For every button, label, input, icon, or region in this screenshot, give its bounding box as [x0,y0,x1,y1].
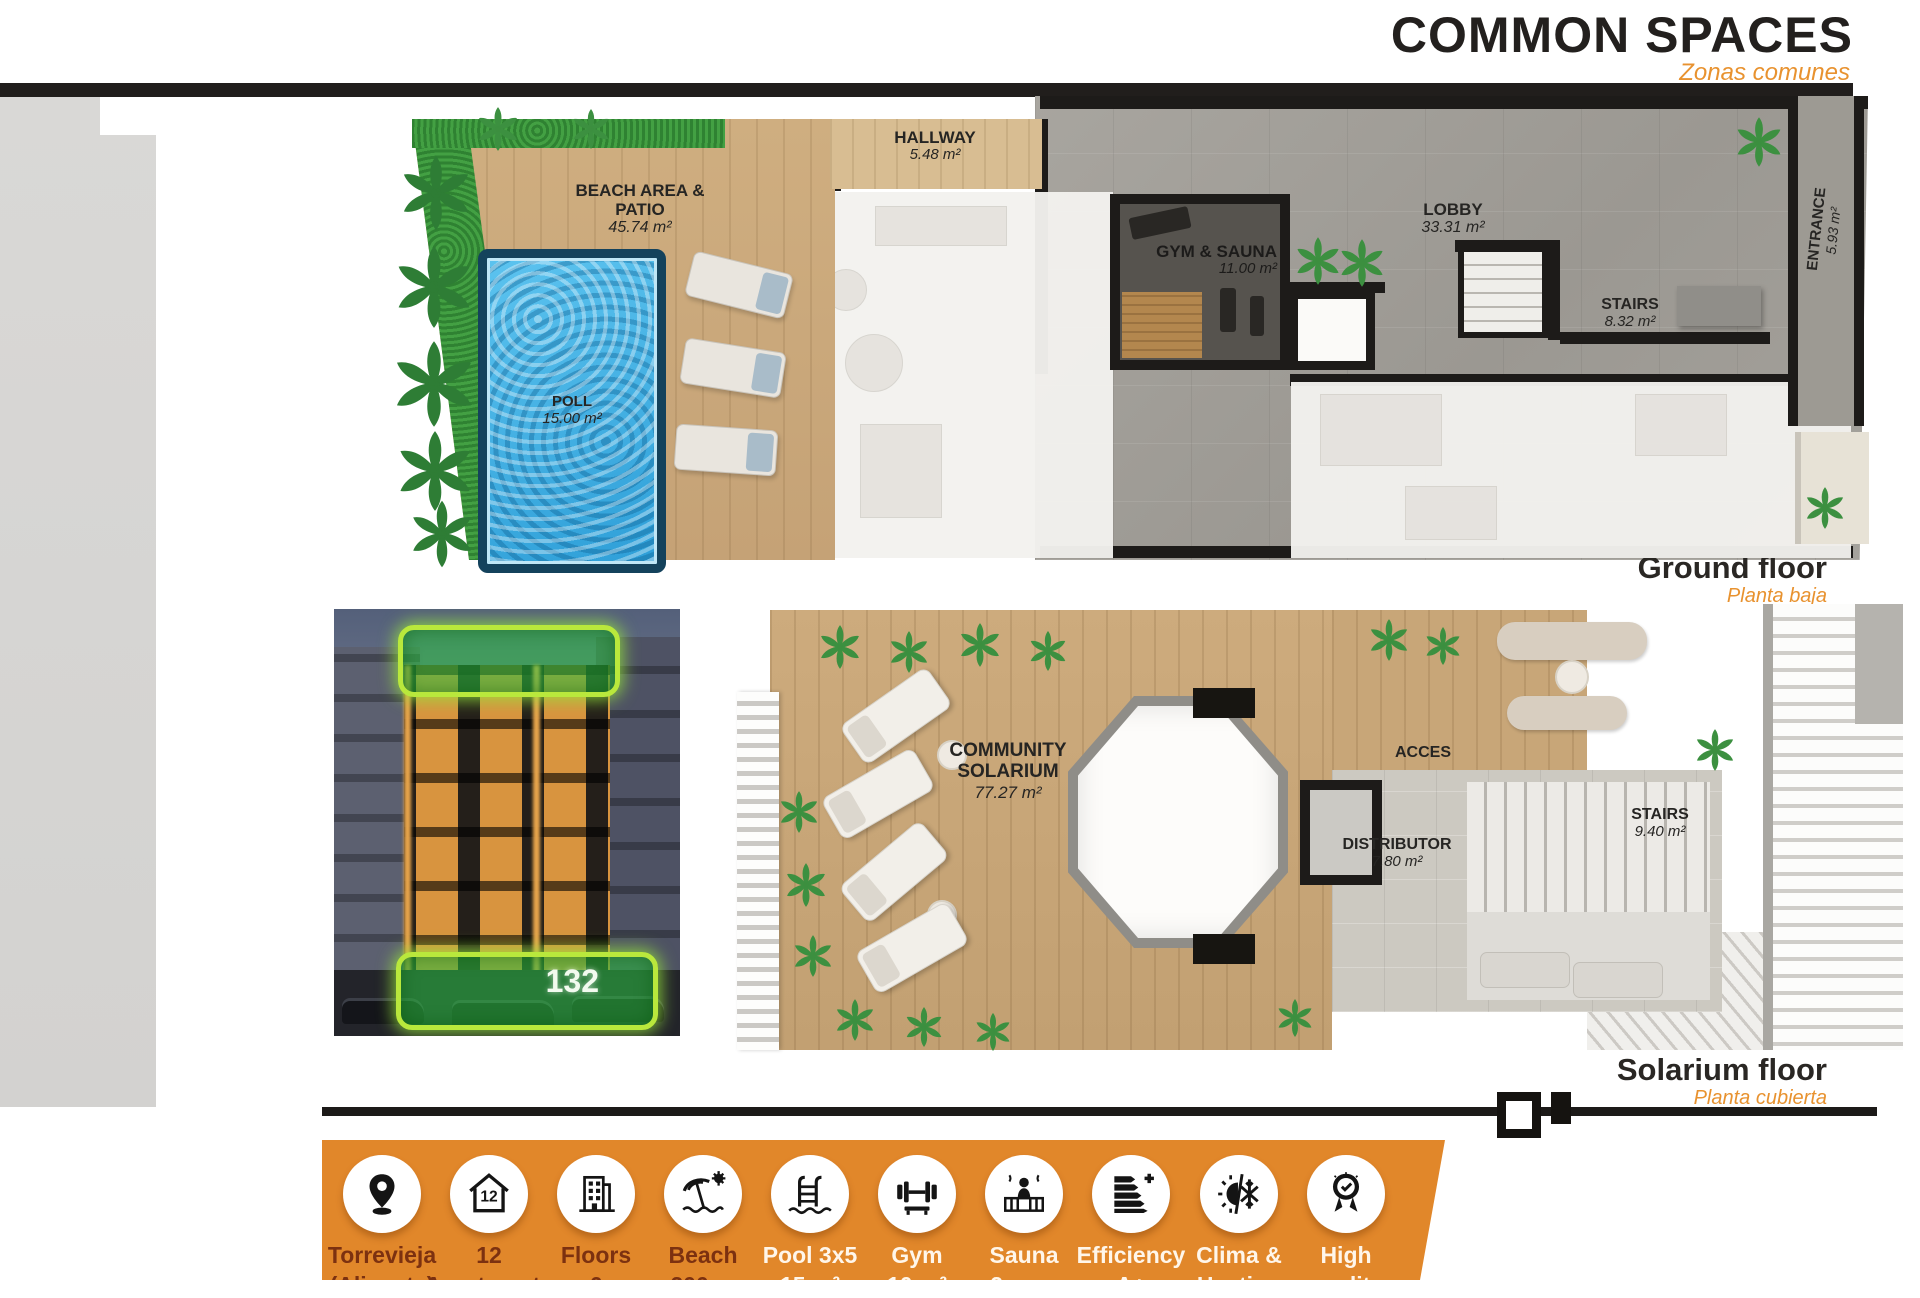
entrance-label: ENTRANCE 5.93 m² [1801,154,1848,307]
building-night-photo: 132 [334,609,680,1036]
gym-equipment [1128,206,1191,240]
palm-icon [391,244,477,330]
plant-icon [1293,236,1343,286]
roof-panel [1855,604,1903,724]
solarium-floor-caption: Solarium floor Planta cubierta [1617,1054,1827,1110]
stairs-label: STAIRS 8.32 m² [1565,296,1695,331]
plant-icon [957,622,1003,668]
roof-divider [1763,604,1773,1050]
stairs-treads [1467,782,1710,912]
house-12-icon: 12 [450,1155,528,1233]
sauna-icon [985,1155,1063,1233]
distributor-label: DISTRIBUTOR 7.80 m² [1333,836,1461,871]
left-gray-strip [0,97,156,1107]
page-title: COMMON SPACES [1391,6,1853,64]
palm-icon [397,154,475,232]
sun-lounger [1573,962,1663,998]
gym-equipment [1220,288,1236,332]
wall [1040,96,1868,109]
unit-badge: 132 [546,963,599,1000]
features-bar: Torrevieja(Alicante) 12 12Apartments Flo… [322,1140,1447,1280]
plant-icon [1367,618,1411,662]
plant-icon [817,624,863,670]
plant-icon [1423,626,1463,666]
svg-text:12: 12 [480,1188,498,1205]
solarium-floor-plan: COMMUNITY SOLARIUM 77.27 m² ACCES DISTRI… [755,600,1905,1055]
palm-icon [407,499,477,569]
ground-floor-highlight: 132 [396,952,658,1030]
entrance-corridor: ENTRANCE 5.93 m² [1788,96,1864,426]
gym-icon [878,1155,956,1233]
plant-icon [1803,486,1847,530]
logo-fragment [1551,1092,1571,1124]
plant-icon [777,790,821,834]
facade-light-strip [533,665,540,985]
quality-medal-icon [1307,1155,1385,1233]
plant-icon [475,106,521,152]
efficiency-icon [1092,1155,1170,1233]
solarium-highlight [398,625,620,697]
community-solarium-label: COMMUNITY SOLARIUM 77.27 m² [918,740,1098,802]
lobby-label: LOBBY 33.31 m² [1393,200,1513,237]
skylight-anchor [1193,688,1255,718]
sofa [1497,622,1647,660]
hallway-label: HALLWAY 5.48 m² [835,128,1035,164]
plant-icon [833,998,877,1042]
plant-icon [1733,116,1785,168]
sauna-bench [1122,292,1202,358]
furniture [845,334,903,392]
furniture [1405,486,1497,540]
main-building-facade [404,665,610,985]
brochure-page: { "header": { "title": "COMMON SPACES", … [0,0,1920,1280]
skylight-anchor [1193,934,1255,964]
pool-ladder-icon [771,1155,849,1233]
gym-equipment [1250,296,1264,336]
plant-icon [1275,998,1315,1038]
plant-icon [1027,630,1069,672]
furniture [1320,394,1442,466]
furniture [875,206,1007,246]
bottom-divider-bar [322,1107,1877,1116]
pergola-slats [737,692,779,1050]
plant-icon [783,862,829,908]
plant-icon [1337,238,1387,288]
plant-icon [903,1006,945,1048]
plant-icon [1693,728,1737,772]
furniture [1635,394,1727,456]
gym-sauna-room [1110,194,1290,370]
plant-icon [887,630,931,674]
grass-strip [412,119,725,148]
swimming-pool: POLL 15.00 m² [478,249,666,573]
wall [1548,240,1560,340]
wall [1560,332,1770,344]
ground-floor-plan: POLL 15.00 m² GYM & SAUNA 11.00 m² ENTRA… [405,94,1870,564]
coffee-table [1555,660,1589,694]
stairs-label: STAIRS 9.40 m² [1600,806,1720,841]
sofa [1507,696,1627,730]
left-white-notch [100,97,158,135]
building-icon [557,1155,635,1233]
plant-icon [570,108,612,150]
pool-label: POLL 15.00 m² [542,394,601,428]
palm-icon [389,339,479,429]
stairs-treads [1458,246,1548,338]
climate-icon [1200,1155,1278,1233]
beach-umbrella-icon [664,1155,742,1233]
plant-icon [973,1012,1013,1052]
plant-icon [791,934,835,978]
location-pin-icon [343,1155,421,1233]
acces-label: ACCES [1363,744,1483,762]
furniture [860,424,942,518]
logo-fragment [1497,1092,1541,1138]
sun-lounger [674,423,779,476]
facade-light-strip [404,665,411,985]
gym-label: GYM & SAUNA 11.00 m² [1112,242,1277,278]
elevator [1289,290,1375,370]
beach-area-label: BEACH AREA & PATIO 45.74 m² [550,181,730,237]
sun-lounger [1480,952,1570,988]
